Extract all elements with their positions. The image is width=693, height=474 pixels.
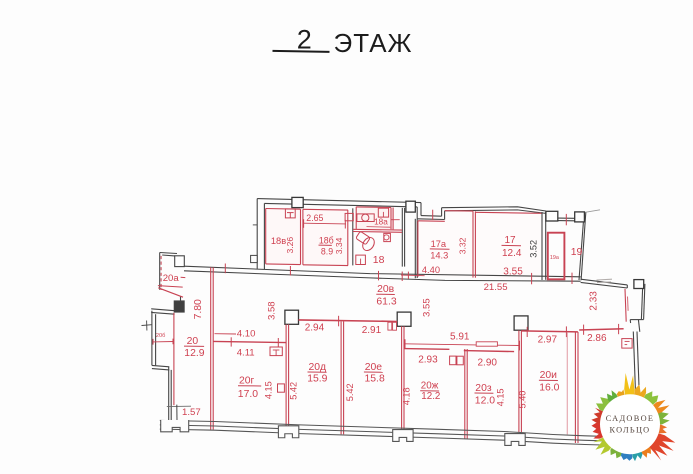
svg-text:ЭТАЖ: ЭТАЖ	[334, 28, 413, 58]
svg-text:3.58: 3.58	[267, 301, 278, 320]
svg-text:4.40: 4.40	[422, 265, 440, 275]
svg-text:4.15: 4.15	[496, 388, 506, 406]
svg-text:18б: 18б	[319, 236, 334, 246]
svg-text:3.26: 3.26	[285, 237, 295, 254]
svg-text:18а: 18а	[374, 218, 388, 227]
svg-text:17: 17	[505, 235, 517, 246]
svg-text:4.11: 4.11	[237, 348, 255, 359]
svg-text:3.34: 3.34	[334, 237, 344, 254]
svg-text:5.91: 5.91	[450, 332, 470, 343]
svg-text:15.8: 15.8	[365, 374, 385, 385]
svg-text:15.9: 15.9	[307, 374, 327, 385]
svg-text:12.9: 12.9	[184, 348, 204, 359]
svg-text:8.9: 8.9	[321, 247, 333, 257]
svg-text:61.3: 61.3	[376, 297, 396, 308]
svg-text:20з: 20з	[475, 383, 492, 394]
svg-text:3.55: 3.55	[503, 266, 523, 277]
svg-text:2.65: 2.65	[306, 213, 323, 223]
svg-text:2.86: 2.86	[587, 333, 607, 344]
svg-text:14.3: 14.3	[430, 250, 448, 260]
svg-text:2.93: 2.93	[418, 355, 438, 366]
svg-text:5.42: 5.42	[345, 383, 355, 401]
svg-text:20д: 20д	[309, 362, 327, 373]
svg-text:16.0: 16.0	[539, 382, 559, 393]
svg-text:5.42: 5.42	[288, 382, 298, 400]
svg-text:12.4: 12.4	[502, 248, 522, 259]
svg-text:20а: 20а	[163, 273, 180, 284]
svg-text:20: 20	[187, 336, 199, 347]
svg-text:18: 18	[373, 254, 385, 266]
svg-text:21.55: 21.55	[484, 282, 508, 293]
svg-text:20в: 20в	[377, 284, 395, 295]
svg-text:3.55: 3.55	[422, 298, 433, 317]
svg-text:2.94: 2.94	[305, 323, 325, 334]
svg-text:17.0: 17.0	[238, 389, 258, 400]
svg-text:2.91: 2.91	[362, 325, 382, 336]
svg-text:20б: 20б	[156, 333, 165, 339]
svg-text:2.90: 2.90	[478, 358, 498, 369]
svg-text:18в: 18в	[271, 236, 286, 246]
svg-text:4.10: 4.10	[237, 328, 256, 339]
svg-text:2.97: 2.97	[538, 334, 558, 345]
svg-text:3.32: 3.32	[458, 237, 468, 254]
svg-text:4.18: 4.18	[402, 387, 412, 405]
svg-text:2: 2	[297, 24, 312, 54]
svg-text:12.0: 12.0	[475, 395, 495, 406]
svg-text:20е: 20е	[365, 362, 383, 373]
svg-text:17а: 17а	[431, 239, 447, 249]
svg-text:5.40: 5.40	[517, 391, 527, 409]
svg-text:2.33: 2.33	[588, 291, 599, 311]
svg-text:7.80: 7.80	[193, 299, 204, 319]
svg-text:3.52: 3.52	[529, 240, 539, 258]
svg-text:1.57: 1.57	[182, 407, 201, 418]
svg-text:САДОВОЕ: САДОВОЕ	[606, 414, 654, 423]
svg-text:20ж: 20ж	[421, 381, 439, 392]
svg-text:20г: 20г	[239, 375, 255, 386]
svg-text:19а: 19а	[550, 255, 559, 261]
svg-text:20и: 20и	[540, 370, 558, 381]
svg-text:КОЛЬЦО: КОЛЬЦО	[610, 426, 651, 435]
svg-text:12.2: 12.2	[421, 391, 440, 402]
svg-text:4.15: 4.15	[264, 381, 274, 399]
svg-text:19: 19	[571, 247, 583, 258]
